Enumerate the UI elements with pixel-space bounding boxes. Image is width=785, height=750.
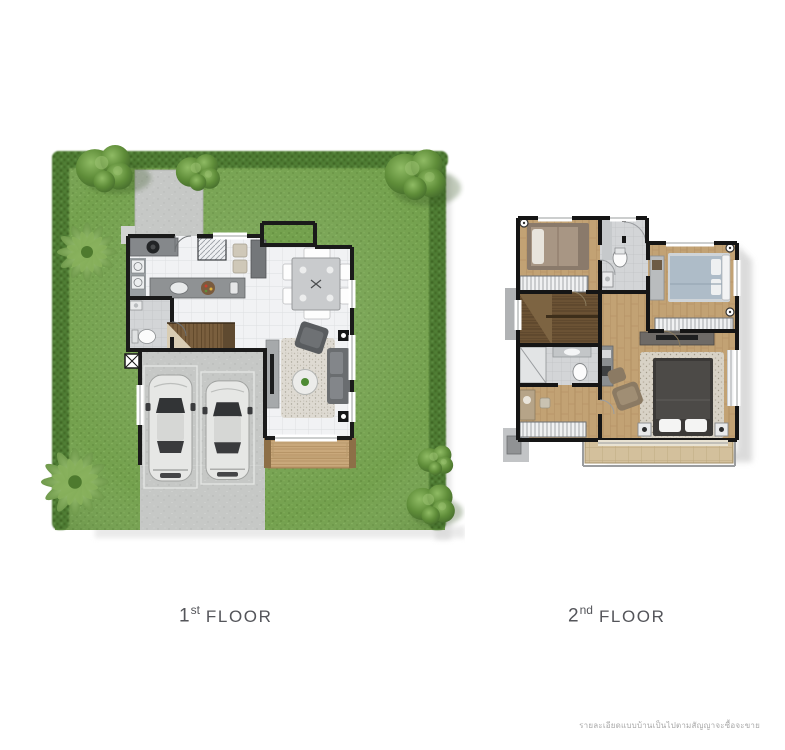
car-right — [203, 381, 253, 480]
second-floor-plan — [498, 200, 760, 480]
first-floor-label: 1stFLOOR — [179, 604, 272, 628]
bedroom-2 — [520, 219, 589, 292]
wardrobe-2 — [520, 276, 588, 292]
vanity-table — [520, 390, 535, 420]
second-floor-ordinal: nd — [580, 603, 593, 617]
bedroom-3 — [650, 244, 734, 331]
second-floor-label: 2ndFLOOR — [568, 604, 666, 628]
first-floor-plan — [35, 130, 465, 560]
staircase — [167, 323, 235, 352]
stool — [233, 244, 247, 257]
first-floor-number: 1 — [179, 606, 190, 627]
second-floor-number: 2 — [568, 606, 579, 627]
disclaimer-text: รายละเอียดแบบบ้านเป็นไปตามสัญญาจะซื้อจะข… — [579, 719, 760, 732]
stool — [233, 260, 247, 273]
car-left — [146, 375, 196, 481]
first-floor-ordinal: st — [191, 603, 200, 617]
deck — [264, 438, 356, 468]
pillow — [532, 229, 544, 264]
first-floor-word: FLOOR — [206, 607, 273, 626]
second-floor-word: FLOOR — [599, 607, 666, 626]
tv — [270, 354, 274, 394]
plant — [301, 378, 309, 386]
atrium-planter — [262, 225, 315, 245]
entry-mirror-cabinet — [198, 238, 226, 260]
floor-plan-sheet: 1stFLOOR 2ndFLOOR รายละเอียดแบบบ้านเป็นไ… — [0, 0, 785, 750]
sofa — [327, 348, 350, 404]
house-first-floor — [125, 223, 356, 488]
second-floor-rooms — [503, 215, 741, 467]
wardrobe-master — [520, 422, 586, 437]
